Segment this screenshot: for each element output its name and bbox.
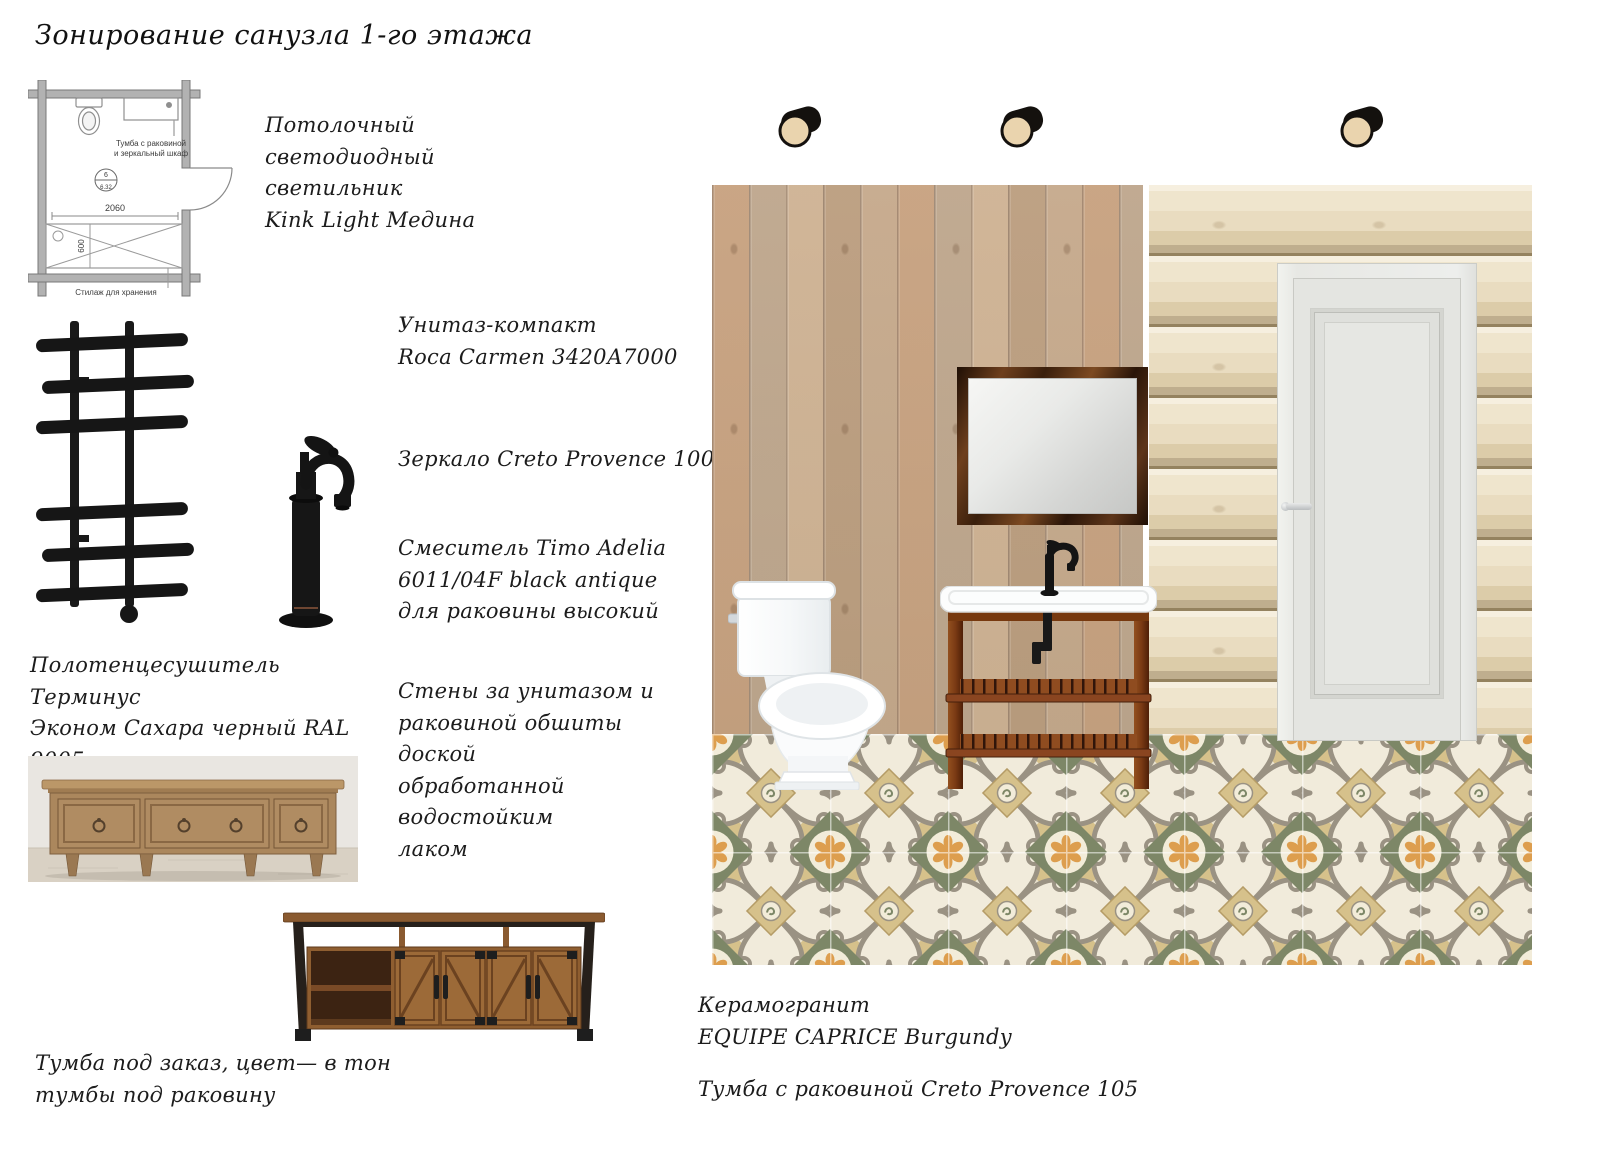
bathroom-visualization bbox=[700, 88, 1545, 965]
drain-pipe bbox=[1043, 612, 1052, 646]
plan-vanity-label-line1: Тумба с раковиной bbox=[116, 139, 186, 148]
plan-vanity-symbol bbox=[124, 98, 178, 136]
vanity-unit bbox=[940, 586, 1157, 793]
door-panel bbox=[1311, 309, 1443, 698]
svg-text:6: 6 bbox=[104, 172, 108, 179]
mirror-glass bbox=[968, 378, 1137, 514]
door-handle bbox=[1281, 499, 1315, 515]
ceiling-light-icon-1 bbox=[776, 105, 824, 149]
ceiling-light-icon-3 bbox=[1338, 105, 1386, 149]
note-toilet: Унитаз-компакт Roca Carmen 3420А7000 bbox=[398, 310, 698, 373]
sink-faucet bbox=[1035, 538, 1085, 596]
faucet-photo bbox=[258, 400, 358, 630]
plan-depth-dimension: 600 bbox=[77, 239, 86, 253]
floor-plan-drawing: Тумба с раковиной и зеркальный шкаф 6 6.… bbox=[28, 80, 238, 302]
page-title: Зонирование санузла 1-го этажа bbox=[35, 20, 533, 51]
plan-door-swing bbox=[190, 168, 232, 210]
floor-plan: Тумба с раковиной и зеркальный шкаф 6 6.… bbox=[28, 80, 238, 302]
note-custom-cabinet: Тумба под заказ, цвет— в тон тумбы под р… bbox=[35, 1048, 395, 1111]
note-mixer: Смеситель Timo Adelia 6011/04F black ant… bbox=[398, 533, 698, 628]
door-slab bbox=[1293, 278, 1461, 741]
mirror bbox=[957, 367, 1148, 525]
cabinet-photo bbox=[283, 903, 605, 1045]
toilet bbox=[728, 576, 888, 790]
plan-room-tag: 6 6.32 bbox=[95, 169, 117, 191]
plan-storage-label: Стилаж для хранения bbox=[75, 288, 156, 297]
plan-width-dimension: 2060 bbox=[52, 203, 178, 220]
svg-text:6.32: 6.32 bbox=[100, 185, 112, 191]
door-handle-lever bbox=[1286, 503, 1312, 510]
door bbox=[1277, 263, 1477, 741]
towel-rail-photo bbox=[30, 315, 200, 625]
note-ceiling-light: Потолочный светодиодный светильник Kink … bbox=[265, 110, 565, 236]
dresser-photo bbox=[28, 756, 358, 882]
note-tile: Керамогранит EQUIPE CAPRICE Burgundy bbox=[698, 990, 1118, 1053]
svg-text:2060: 2060 bbox=[105, 203, 125, 213]
note-walls: Стены за унитазом и раковиной обшиты дос… bbox=[398, 676, 698, 865]
ceiling-light-icon-2 bbox=[998, 105, 1046, 149]
note-vanity: Тумба с раковиной Creto Provence 105 bbox=[698, 1074, 1178, 1106]
plan-toilet-symbol bbox=[76, 98, 102, 135]
plan-vanity-label-line2: и зеркальный шкаф bbox=[114, 149, 189, 158]
note-mirror: Зеркало Creto Provence 100 bbox=[398, 444, 718, 476]
